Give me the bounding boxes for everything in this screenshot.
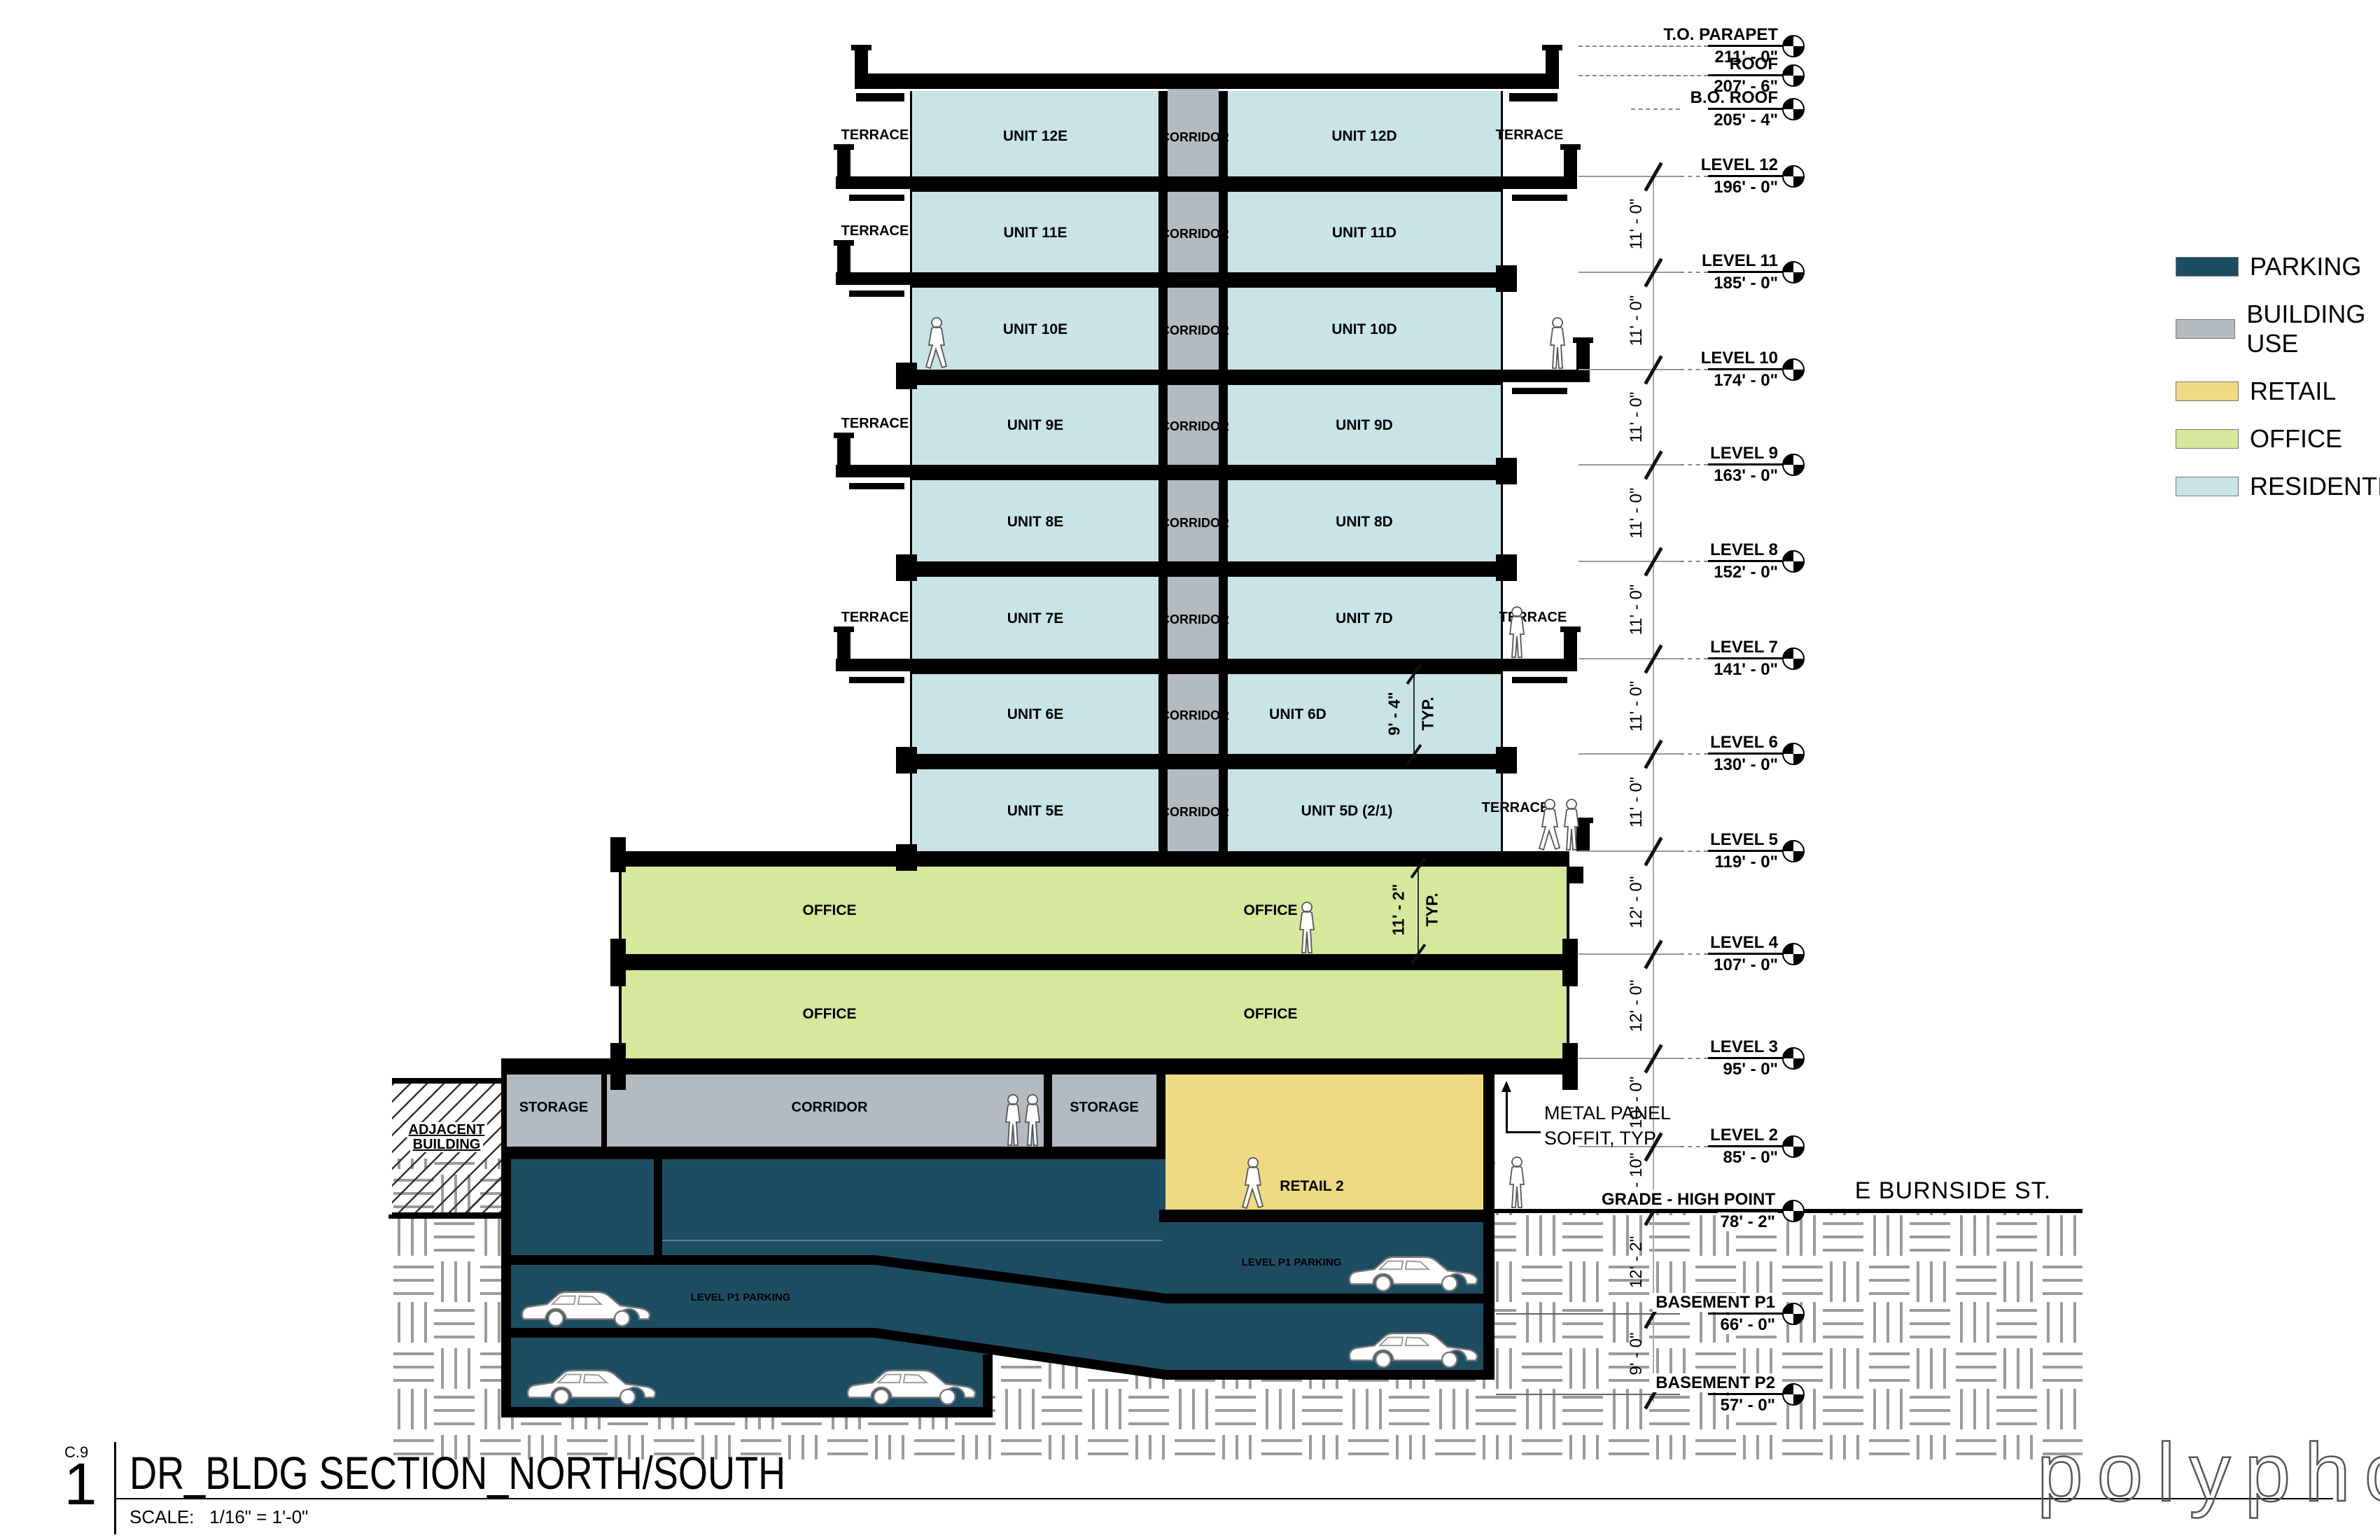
balcony-rail-cap [1560,144,1581,150]
balcony-rail-cap [834,240,854,246]
detail-number: 1 [56,1455,105,1513]
legend-label: PARKING [2250,252,2361,281]
car-icon [843,1365,980,1407]
ground-slab-l2 [501,1147,1165,1159]
ground-wall [1156,1074,1165,1147]
level-name: T.O. PARAPET [1568,27,1778,43]
balcony-rail-post [837,148,850,189]
roof-parapet-right [1546,49,1559,89]
corridor-label: CORRIDOR [1161,806,1225,819]
balcony-rail-cap [834,626,854,632]
balcony-rail-post [837,437,850,477]
slab-edge-block [1496,265,1517,292]
ground-wall [1044,1074,1052,1147]
corridor-label: CORRIDOR [1161,613,1225,626]
unit-label: UNIT 11E [909,225,1161,241]
office-post [610,1043,626,1090]
basement-floor-slab [501,1407,993,1417]
terrace-label: TERRACE [826,610,924,625]
level-name: GRADE - HIGH POINT [1568,1191,1778,1208]
corridor-label: CORRIDOR [1161,709,1225,722]
level-elevation: 119' - 0" [1568,854,1778,871]
legend-item-residential: RESIDENTIAL [2176,472,2380,501]
floor-slab-l7 [912,659,1501,674]
unit-label: UNIT 7E [909,611,1161,626]
office-slab-l4 [619,954,1569,970]
slab-edge-block [1496,554,1517,581]
floor-slab-l10 [912,370,1501,385]
level-elevation: 130' - 0" [1568,757,1778,773]
retail-street-wall [1483,1074,1494,1222]
legend-swatch-building-use [2176,319,2235,339]
roof-slab [868,73,1546,89]
dim-label-typ: TYP. [1424,878,1441,941]
level-name: B.O. ROOF [1568,90,1778,106]
scale-note: SCALE: 1/16" = 1'-0" [129,1506,308,1528]
level-marker-icon [1782,98,1805,120]
legend-label: OFFICE [2250,424,2342,454]
storage-label: STORAGE [1052,1100,1156,1115]
adjacent-building-line1: ADJACENT [406,1122,488,1137]
unit-label: UNIT 9E [909,418,1161,433]
balcony-lip [849,195,904,201]
terrace-label: TERRACE [1484,610,1582,625]
dim-label-unit-height: 9' - 4" [1387,682,1403,745]
leader-arrow [1501,1081,1511,1092]
drawing-title: DR_BLDG SECTION_NORTH/SOUTH [129,1446,785,1499]
slab-edge-block [896,844,917,871]
level-name: LEVEL 7 [1568,639,1778,656]
level-elevation: 107' - 0" [1568,957,1778,974]
level-name: LEVEL 9 [1568,445,1778,462]
level-marker-icon [1782,358,1805,381]
slab-edge-block [896,747,917,773]
level-elevation: 196' - 0" [1568,179,1778,196]
roof-parapet-cap-left [851,45,871,50]
basement-left-wall [501,1159,511,1417]
roof-soffit-lip-left [856,93,904,101]
roof-soffit-lip-right [1509,93,1557,101]
level-name: BASEMENT P1 [1568,1294,1778,1311]
legend-item-office: OFFICE [2176,424,2380,454]
slab-l3 [501,1058,1569,1074]
car-icon [1345,1328,1482,1370]
terrace-label: TERRACE [1480,128,1578,143]
balcony-rail-post [837,244,850,285]
balcony-lip [1512,195,1567,201]
level-marker-icon [1782,943,1805,965]
level-marker-icon [1782,1135,1805,1158]
person-icon [921,316,952,370]
roof-parapet-cap-right [1542,45,1562,50]
office-label: OFFICE [724,1007,934,1022]
storage-label: STORAGE [505,1100,603,1115]
office-post [610,939,626,986]
person-icon [1295,901,1319,954]
dim-label-office-height: 11' - 2" [1391,878,1407,941]
level-marker-icon [1782,64,1805,87]
unit-label: UNIT 11D [1228,225,1501,241]
level-marker-icon [1782,261,1805,283]
level-name: LEVEL 4 [1568,934,1778,951]
floor-slab-l11 [912,272,1501,288]
level-marker-icon [1782,1303,1805,1325]
balcony-lip [1512,677,1567,683]
balcony-rail-cap [834,433,854,438]
level-marker-icon [1782,1047,1805,1070]
street-label: E BURNSIDE ST. [1792,1179,2114,1204]
slab-edge-block [1496,747,1517,773]
terrace-label: TERRACE [826,128,924,143]
office-label: OFFICE [1165,1007,1375,1022]
balcony-rail-cap [1573,337,1593,343]
floor-slab-l12 [912,176,1501,192]
corridor-label: CORRIDOR [1161,517,1225,530]
unit-label: UNIT 9D [1228,418,1501,433]
level-name: LEVEL 12 [1568,157,1778,174]
dim-label-typ: TYP. [1420,682,1436,745]
level-elevation: 141' - 0" [1568,661,1778,678]
car-icon [524,1365,660,1407]
office-roof-slab-l5 [619,851,1569,867]
level-marker-icon [1782,647,1805,670]
office-label: OFFICE [724,903,934,918]
legend-item-building-use: BUILDING USE [2176,300,2380,358]
parking-level-label: LEVEL P1 PARKING [1221,1257,1361,1268]
office-post [610,837,626,872]
level-marker-icon [1782,165,1805,188]
balcony-lip [849,677,904,683]
retail-floor-slab [1159,1210,1494,1222]
soffit-annotation: METAL PANEL SOFFIT, TYP [1544,1100,1671,1151]
level-elevation: 95' - 0" [1568,1061,1778,1078]
level-elevation: 185' - 0" [1568,275,1778,292]
basement-end-wall [983,1354,993,1417]
balcony-lip [849,483,904,489]
adjacent-building-line2: BUILDING [410,1137,484,1152]
office-label: OFFICE [1165,903,1375,918]
parking-level-label: LEVEL P1 PARKING [671,1292,811,1303]
corridor-label: CORRIDOR [1161,324,1225,337]
balcony-rail-cap [1560,626,1581,632]
unit-label: UNIT 8E [909,514,1161,530]
corridor-label: CORRIDOR [1161,131,1225,144]
unit-label: UNIT 7D [1228,611,1501,626]
person-icon [1546,316,1569,370]
level-elevation: 78' - 2" [1568,1214,1778,1231]
balcony-rail-cap [834,144,854,150]
dim-label: 12' - 2" [1628,1220,1645,1304]
level-name: LEVEL 3 [1568,1039,1778,1056]
slab-edge-block [896,554,917,581]
level-name: ROOF [1568,56,1778,73]
car-icon [1345,1252,1482,1294]
level-marker-icon [1782,550,1805,573]
legend: PARKING BUILDING USE RETAIL OFFICE RESID… [2176,252,2380,519]
floor-slab-l9 [912,465,1501,480]
level-name: BASEMENT P2 [1568,1375,1778,1392]
legend-swatch-office [2176,429,2239,449]
unit-label: UNIT 5D (2/1) [1228,804,1466,819]
level-marker-icon [1782,35,1805,57]
car-icon [518,1287,654,1329]
slab-edge-block [1496,458,1517,484]
corridor-label: CORRIDOR [1161,420,1225,433]
person-icon [1238,1156,1268,1210]
slab-edge-block [896,363,917,389]
level-name: LEVEL 8 [1568,542,1778,559]
legend-label: BUILDING USE [2246,300,2380,358]
unit-label: UNIT 12E [909,129,1161,144]
unit-label: UNIT 12D [1228,129,1501,144]
legend-swatch-parking [2176,257,2239,276]
level-elevation: 163' - 0" [1568,468,1778,484]
corridor-label: CORRIDOR [1161,227,1225,241]
level-marker-icon [1782,454,1805,476]
level-elevation: 174' - 0" [1568,372,1778,389]
level-name: LEVEL 10 [1568,350,1778,367]
person-icon [1505,605,1529,659]
level-elevation: 152' - 0" [1568,564,1778,581]
level-marker-icon [1782,1383,1805,1406]
unit-label: UNIT 10D [1228,322,1501,337]
person-icon [1505,1156,1529,1209]
level-name: LEVEL 5 [1568,832,1778,848]
legend-item-retail: RETAIL [2176,377,2380,406]
level-name: LEVEL 6 [1568,734,1778,751]
unit-label: UNIT 5E [909,804,1161,819]
level-marker-icon [1782,743,1805,765]
legend-label: RESIDENTIAL [2250,472,2380,501]
dim-label: 12' - 0" [1628,964,1645,1048]
basement-right-wall [1483,1222,1494,1380]
roof-parapet-left [855,49,868,89]
balcony-rail-post [837,631,850,671]
building-section-sheet: ADJACENT BUILDING [0,0,2380,1540]
polyphon-logo: polyphon [2037,1425,2380,1520]
level-marker-icon [1782,840,1805,862]
parking-divider-wall [654,1159,662,1255]
level-elevation: 57' - 0" [1568,1397,1778,1414]
legend-swatch-residential [2176,477,2239,496]
level-elevation: 85' - 0" [1568,1149,1778,1166]
legend-label: RETAIL [2250,377,2336,406]
level-name: LEVEL 11 [1568,253,1778,269]
unit-label: UNIT 6E [909,707,1161,722]
floor-slab-l8 [912,561,1501,577]
person-icon [1021,1093,1044,1147]
unit-label: UNIT 6D [1228,707,1368,722]
terrace-label: TERRACE [826,224,924,239]
balcony-lip [1512,388,1567,394]
legend-swatch-retail [2176,381,2239,401]
ground-corridor-label: CORRIDOR [724,1100,934,1115]
balcony-lip [849,290,904,297]
legend-item-parking: PARKING [2176,252,2380,281]
unit-label: UNIT 8D [1228,514,1501,530]
level-elevation: 66' - 0" [1568,1317,1778,1333]
dim-label: 12' - 0" [1628,860,1645,944]
adjacent-building-label: ADJACENT BUILDING [395,1123,498,1152]
terrace-label: TERRACE [826,416,924,431]
level-elevation: 205' - 4" [1568,112,1778,129]
